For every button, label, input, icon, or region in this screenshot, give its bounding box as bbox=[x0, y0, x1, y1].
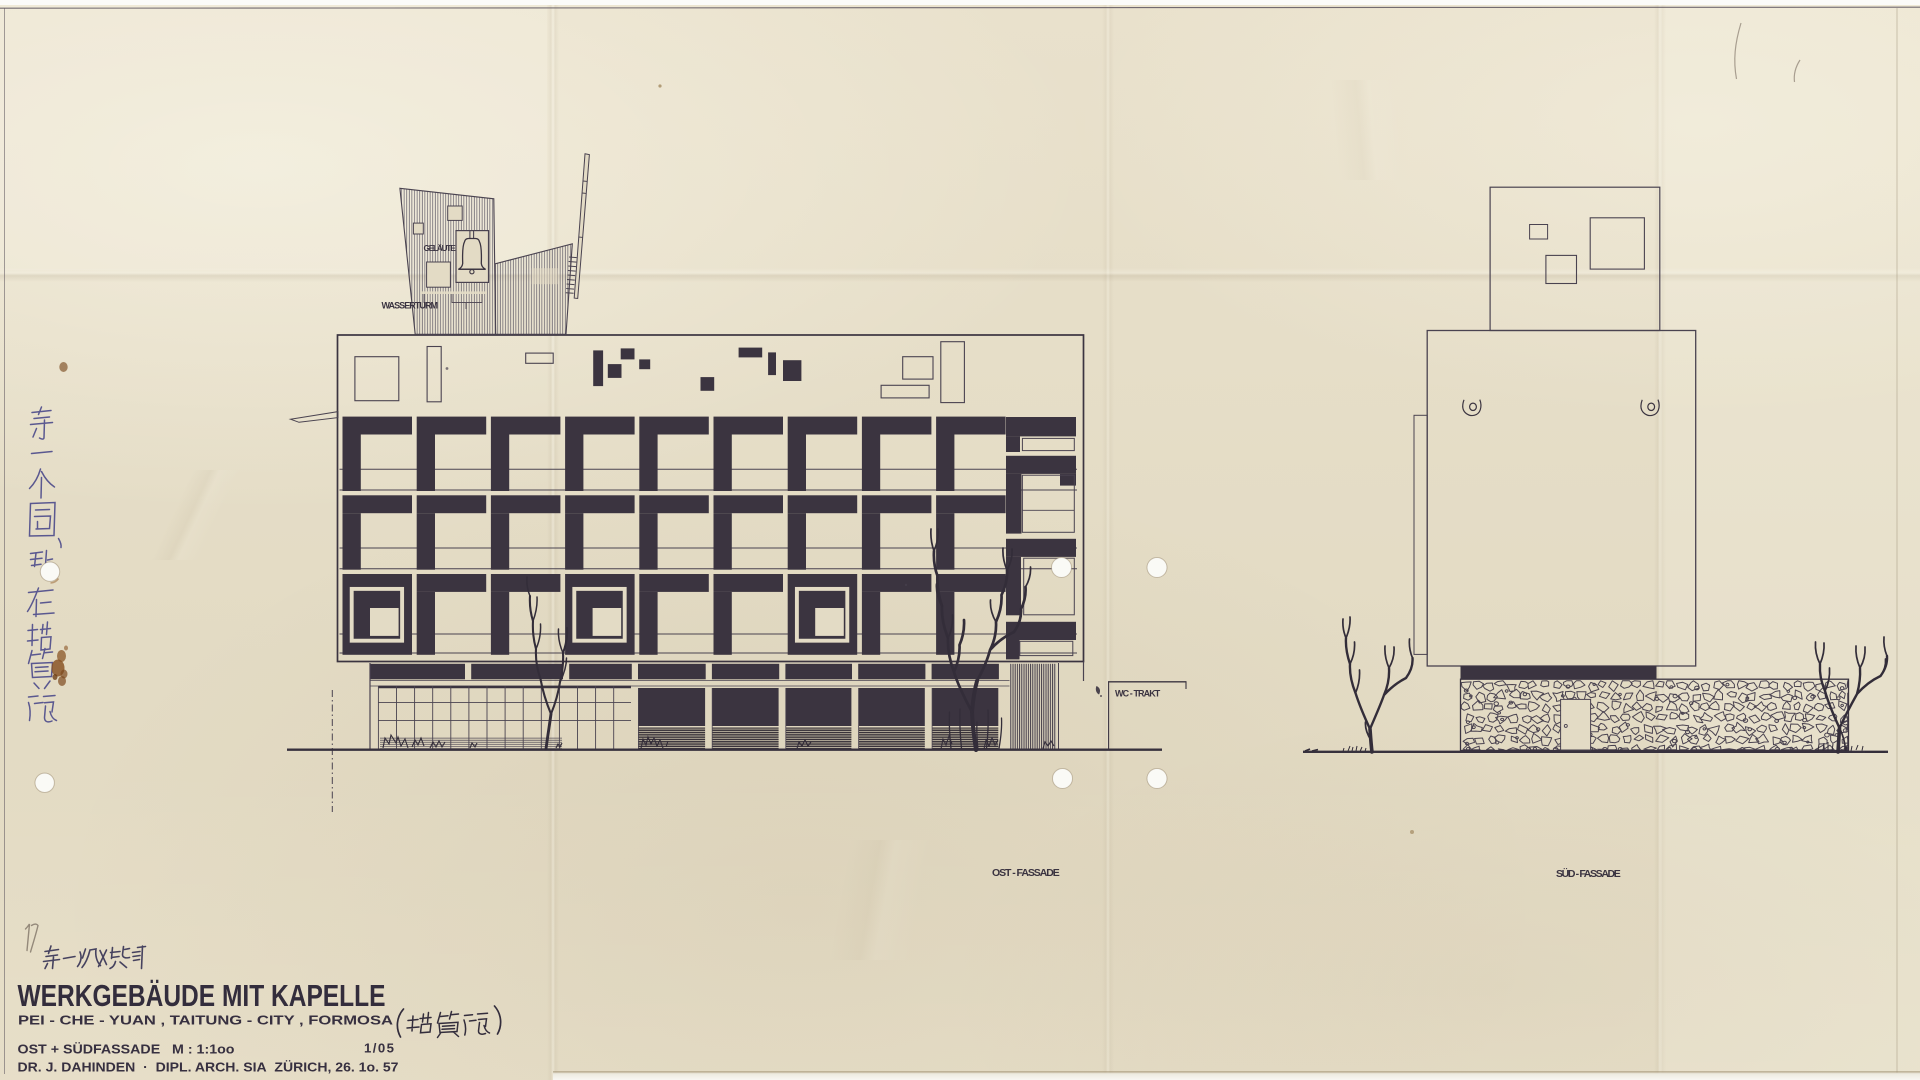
svg-text:PEI - CHE - YUAN , TAITUNG - C: PEI - CHE - YUAN , TAITUNG - CITY , FORM… bbox=[18, 1013, 393, 1027]
svg-text:WASSERTURM: WASSERTURM bbox=[382, 301, 440, 311]
svg-text:1/05: 1/05 bbox=[364, 1041, 394, 1056]
svg-text:OST - FASSADE: OST - FASSADE bbox=[992, 867, 1061, 879]
svg-text:SÜD - FASSADE: SÜD - FASSADE bbox=[1556, 867, 1622, 880]
svg-text:WC - TRAKT: WC - TRAKT bbox=[1115, 689, 1161, 699]
svg-text:WERKGEBÄUDE MIT KAPELLE: WERKGEBÄUDE MIT KAPELLE bbox=[18, 979, 386, 1013]
svg-text:OST + SÜDFASSADE M : 1:1oo: OST + SÜDFASSADE M : 1:1oo bbox=[18, 1041, 235, 1056]
svg-text:DR. J. DAHINDEN · DIPL. ARCH: DR. J. DAHINDEN · DIPL. ARCH. SIA ZÜRICH… bbox=[18, 1060, 399, 1075]
svg-text:GELÄUTE: GELÄUTE bbox=[424, 243, 457, 253]
